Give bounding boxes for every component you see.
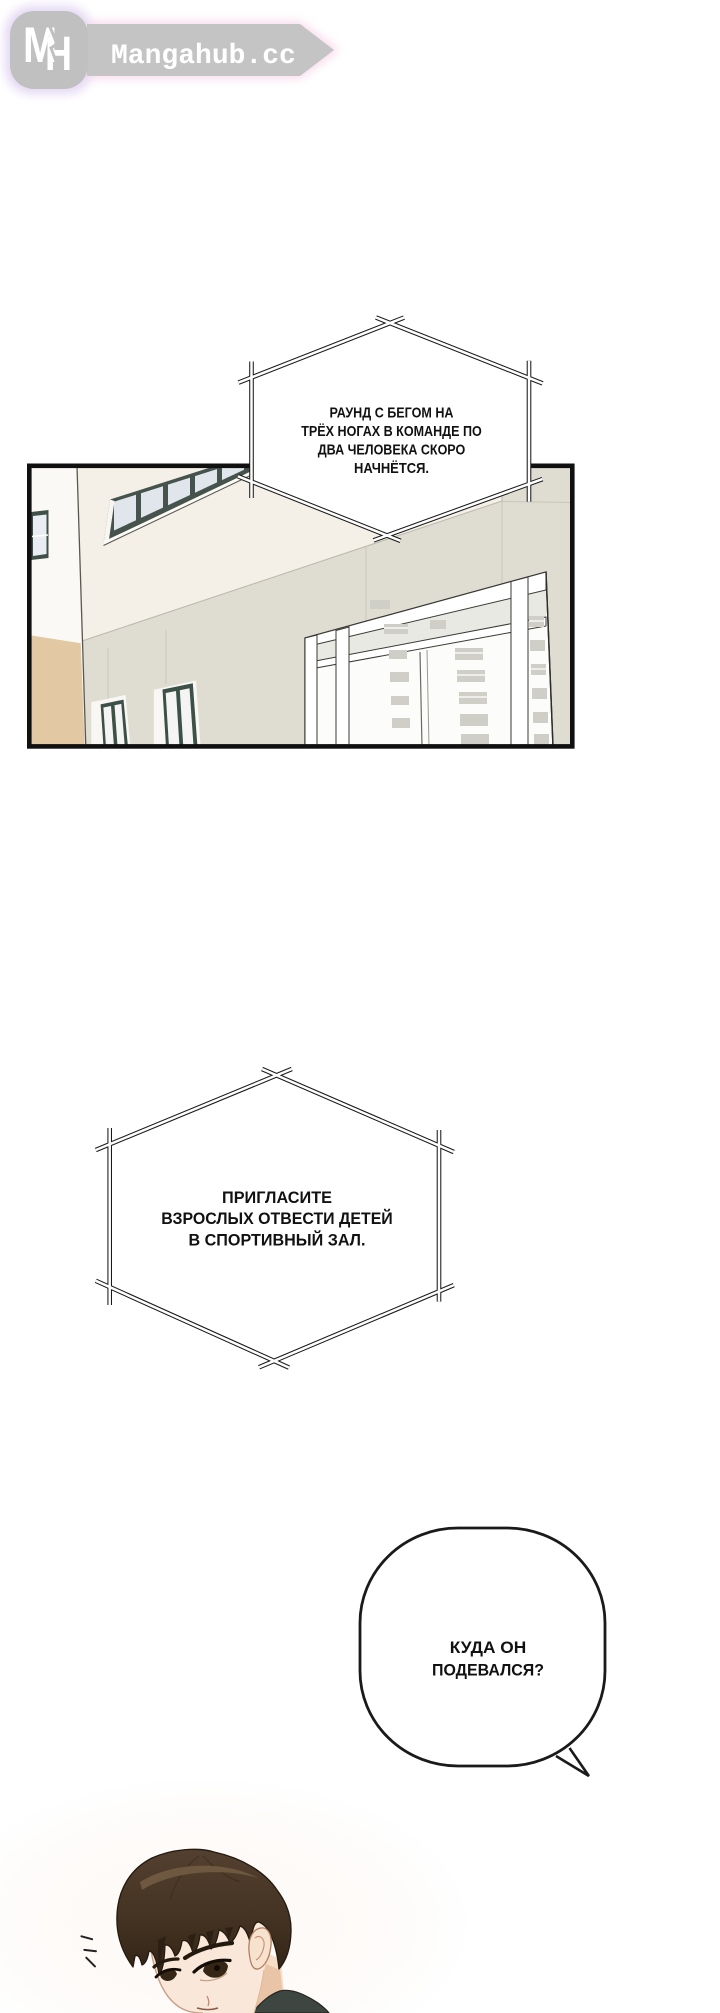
svg-text:ВЗРОСЛЫХ ОТВЕСТИ ДЕТЕЙ: ВЗРОСЛЫХ ОТВЕСТИ ДЕТЕЙ bbox=[161, 1209, 393, 1228]
svg-text:РАУНД С БЕГОМ НА: РАУНД С БЕГОМ НА bbox=[330, 405, 454, 422]
svg-text:ПРИГЛАСИТЕ: ПРИГЛАСИТЕ bbox=[222, 1188, 332, 1207]
svg-text:КУДА ОН: КУДА ОН bbox=[450, 1638, 527, 1657]
svg-text:ПОДЕВАЛСЯ?: ПОДЕВАЛСЯ? bbox=[432, 1661, 544, 1680]
svg-text:Mangahub.cc: Mangahub.cc bbox=[111, 41, 296, 72]
svg-text:ТРЁХ НОГАХ В КОМАНДЕ ПО: ТРЁХ НОГАХ В КОМАНДЕ ПО bbox=[301, 423, 482, 440]
svg-text:В СПОРТИВНЫЙ ЗАЛ.: В СПОРТИВНЫЙ ЗАЛ. bbox=[189, 1230, 366, 1249]
svg-text:ДВА ЧЕЛОВЕКА СКОРО: ДВА ЧЕЛОВЕКА СКОРО bbox=[318, 442, 466, 459]
svg-text:H: H bbox=[45, 28, 72, 82]
svg-text:НАЧНЁТСЯ.: НАЧНЁТСЯ. bbox=[354, 460, 429, 477]
